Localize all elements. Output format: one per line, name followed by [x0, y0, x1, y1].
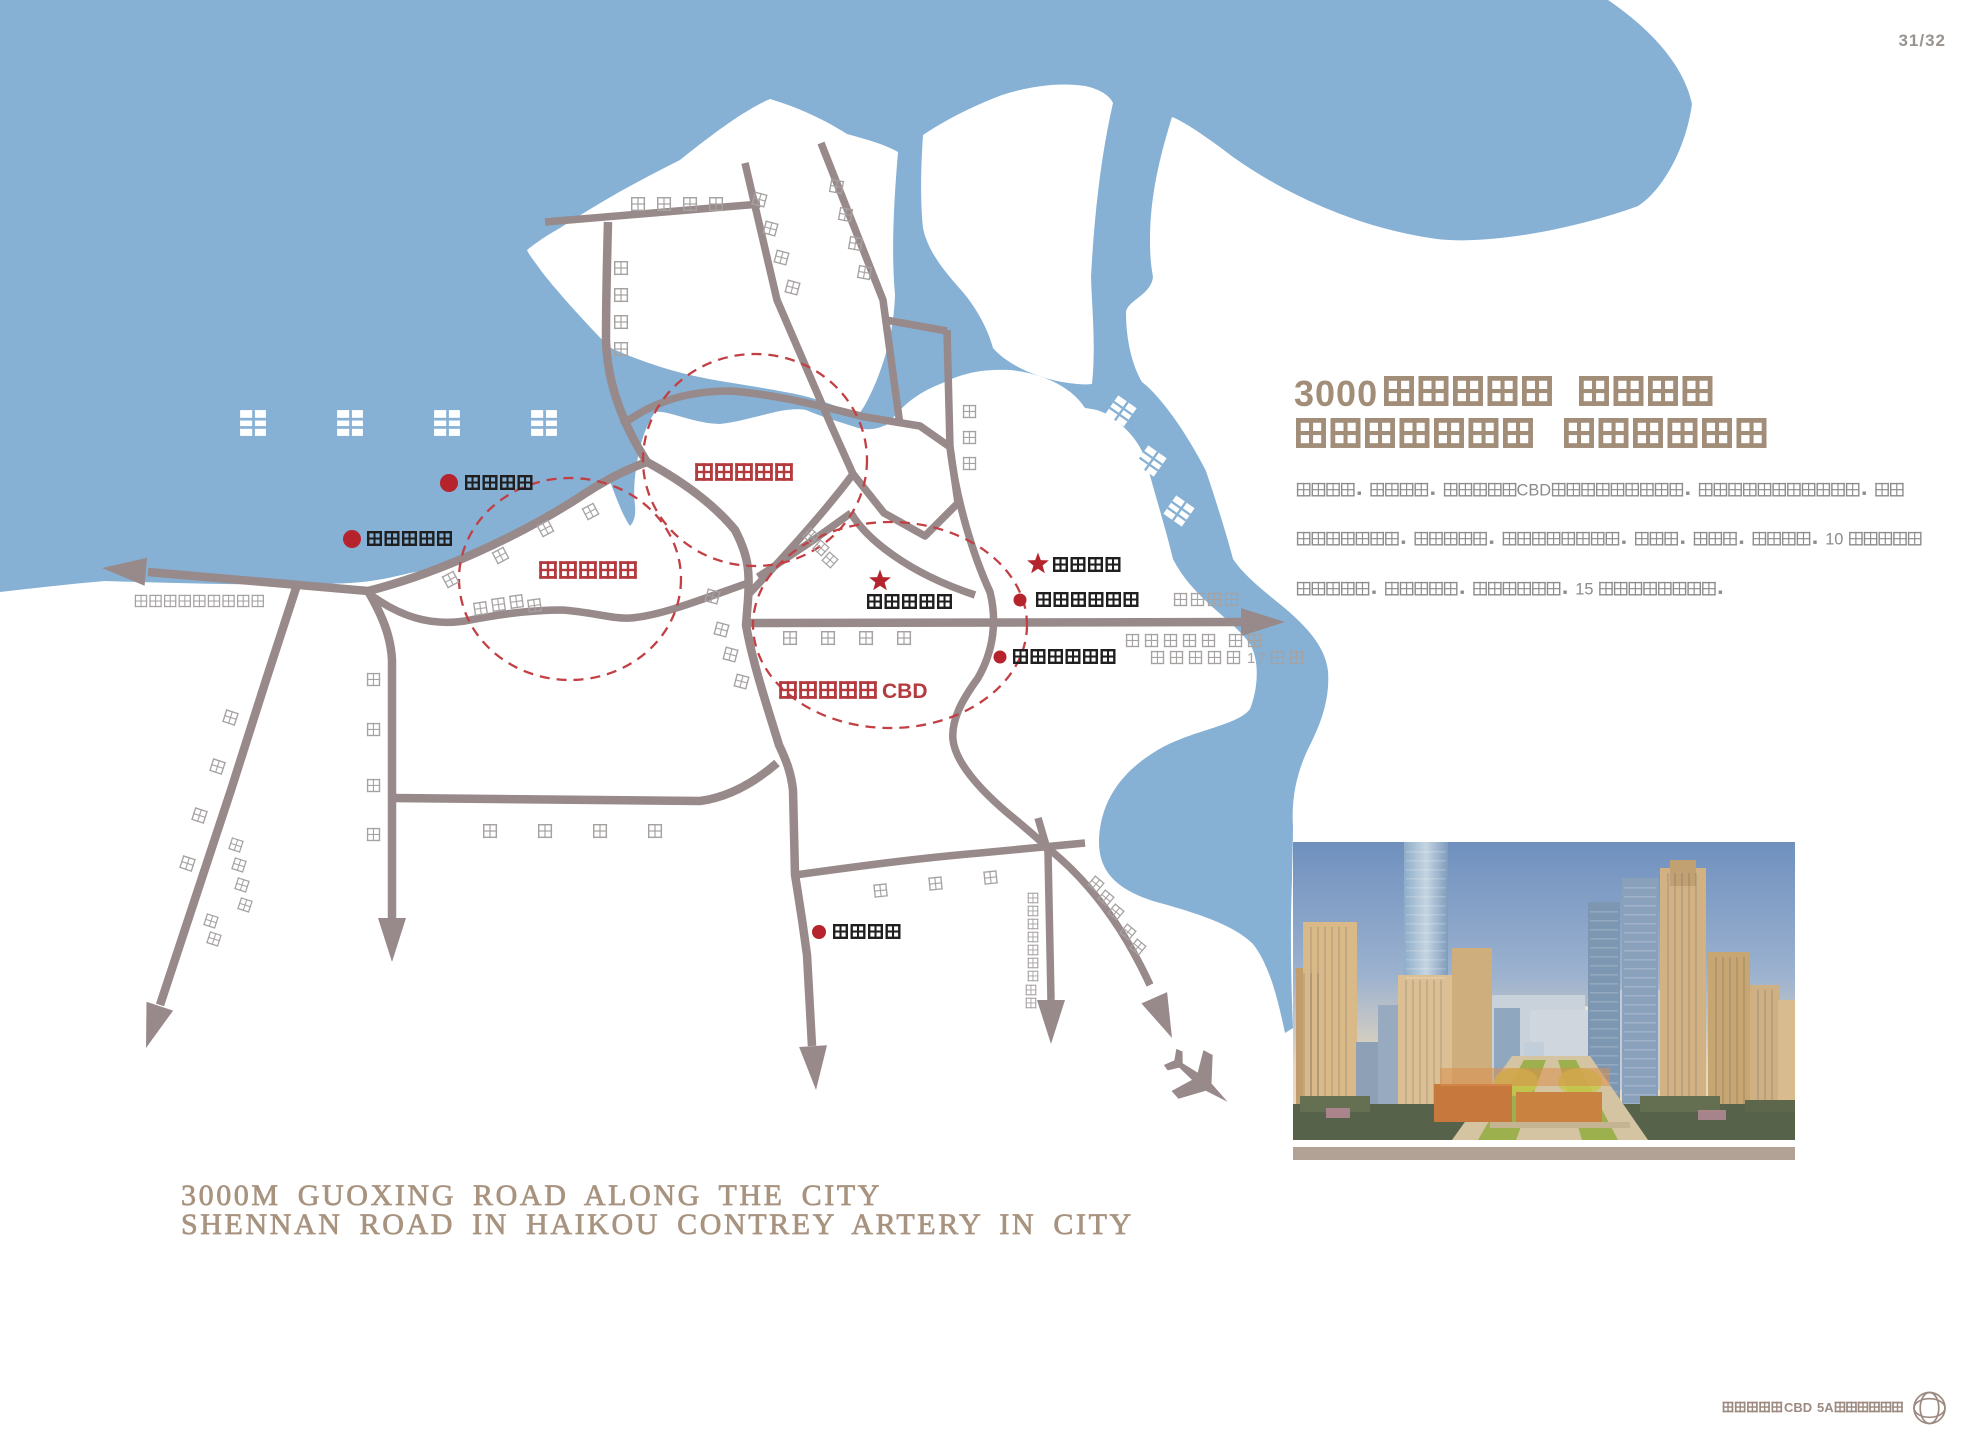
- svg-text:31/32: 31/32: [1898, 31, 1946, 50]
- svg-text:10: 10: [1825, 531, 1843, 549]
- svg-text:17: 17: [1247, 650, 1268, 667]
- svg-text:CBD: CBD: [882, 680, 928, 703]
- svg-text:CBD: CBD: [1517, 482, 1552, 500]
- svg-text:15: 15: [1575, 581, 1593, 599]
- svg-text:5A: 5A: [1817, 1400, 1834, 1415]
- svg-text:SHENNAN ROAD IN HAIKOU CONTREY: SHENNAN ROAD IN HAIKOU CONTREY ARTERY IN…: [181, 1208, 1134, 1241]
- svg-text:3000: 3000: [1294, 373, 1378, 414]
- svg-text:CBD: CBD: [1784, 1400, 1812, 1415]
